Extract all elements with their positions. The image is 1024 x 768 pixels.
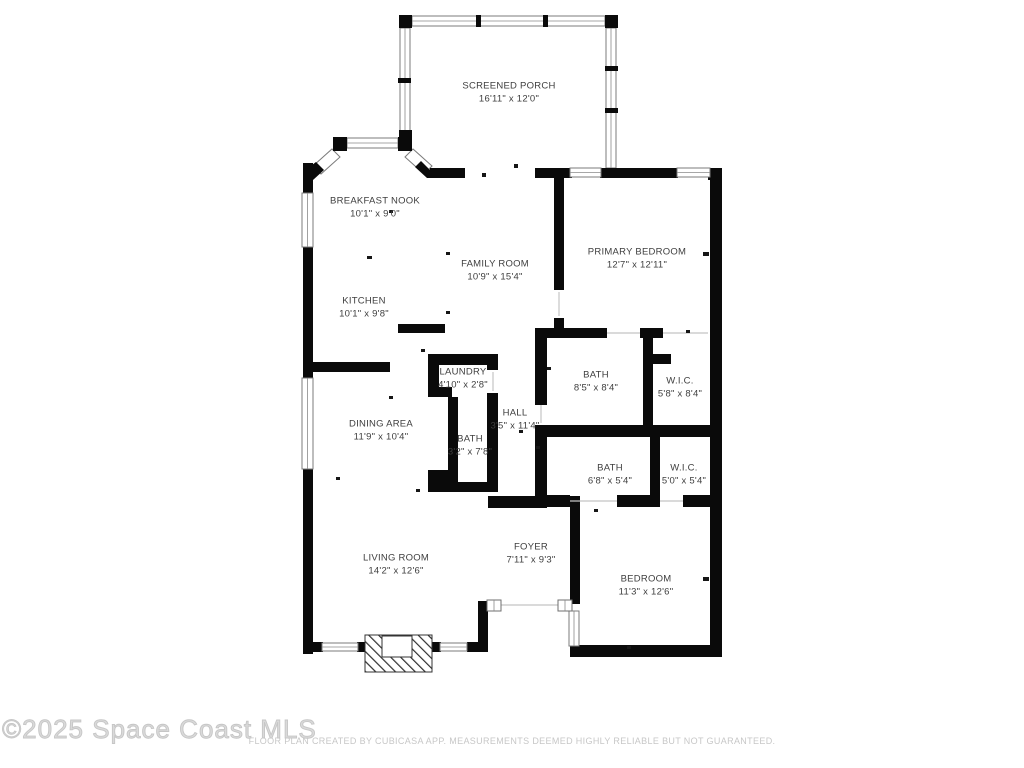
room-label-primary-bedroom: PRIMARY BEDROOM 12'7" x 12'11"	[588, 247, 686, 272]
room-dims: 5'0" x 5'4"	[662, 475, 706, 488]
room-dims: 10'1" x 9'0"	[330, 208, 420, 221]
room-dims: 8'5" x 8'4"	[574, 382, 618, 395]
room-dims: 7'11" x 9'3"	[506, 554, 555, 567]
room-name: SCREENED PORCH	[462, 81, 555, 94]
room-name: DINING AREA	[349, 419, 413, 432]
floor-plan-drawing	[0, 0, 1024, 768]
room-dims: 10'1" x 9'8"	[339, 308, 389, 321]
room-name: LAUNDRY	[438, 367, 488, 380]
room-dims: 11'9" x 10'4"	[349, 431, 413, 444]
floor-plan-page: SCREENED PORCH 16'11" x 12'0" BREAKFAST …	[0, 0, 1024, 768]
room-dims: 12'7" x 12'11"	[588, 259, 686, 272]
room-name: LIVING ROOM	[363, 553, 429, 566]
room-label-kitchen: KITCHEN 10'1" x 9'8"	[339, 296, 389, 321]
room-dims: 10'9" x 15'4"	[461, 271, 529, 284]
fireplace	[365, 635, 432, 672]
room-name: W.I.C.	[658, 376, 702, 389]
room-name: BEDROOM	[619, 574, 674, 587]
room-dims: 5'8" x 8'4"	[658, 388, 702, 401]
room-name: FOYER	[506, 542, 555, 555]
room-label-laundry: LAUNDRY 4'10" x 2'8"	[438, 367, 488, 392]
room-name: PRIMARY BEDROOM	[588, 247, 686, 260]
room-dims: 14'2" x 12'6"	[363, 565, 429, 578]
room-name: BATH	[588, 463, 632, 476]
room-name: BATH	[448, 434, 492, 447]
room-name: BATH	[574, 370, 618, 383]
room-dims: 6'8" x 5'4"	[588, 475, 632, 488]
bay-window	[304, 137, 441, 180]
room-name: BREAKFAST NOOK	[330, 196, 420, 209]
room-name: HALL	[490, 408, 539, 421]
room-dims: 4'10" x 2'8"	[438, 379, 488, 392]
room-name: KITCHEN	[339, 296, 389, 309]
cubicasa-disclaimer: FLOOR PLAN CREATED BY CUBICASA APP. MEAS…	[249, 736, 776, 746]
room-label-foyer: FOYER 7'11" x 9'3"	[506, 542, 555, 567]
room-dims: 3'5" x 11'4"	[490, 420, 539, 433]
room-dims: 16'11" x 12'0"	[462, 93, 555, 106]
room-name: W.I.C.	[662, 463, 706, 476]
room-label-wic-1: W.I.C. 5'8" x 8'4"	[658, 376, 702, 401]
room-label-bath-2: BATH 3'2" x 7'8"	[448, 434, 492, 459]
room-label-bath-1: BATH 8'5" x 8'4"	[574, 370, 618, 395]
room-label-hall: HALL 3'5" x 11'4"	[490, 408, 539, 433]
room-label-family-room: FAMILY ROOM 10'9" x 15'4"	[461, 259, 529, 284]
room-label-screened-porch: SCREENED PORCH 16'11" x 12'0"	[462, 81, 555, 106]
room-label-wic-2: W.I.C. 5'0" x 5'4"	[662, 463, 706, 488]
interior-walls	[306, 178, 712, 508]
room-label-breakfast-nook: BREAKFAST NOOK 10'1" x 9'0"	[330, 196, 420, 221]
room-label-living-room: LIVING ROOM 14'2" x 12'6"	[363, 553, 429, 578]
room-label-bedroom: BEDROOM 11'3" x 12'6"	[619, 574, 674, 599]
room-dims: 11'3" x 12'6"	[619, 586, 674, 599]
room-name: FAMILY ROOM	[461, 259, 529, 272]
room-label-bath-3: BATH 6'8" x 5'4"	[588, 463, 632, 488]
room-label-dining-area: DINING AREA 11'9" x 10'4"	[349, 419, 413, 444]
room-dims: 3'2" x 7'8"	[448, 446, 492, 459]
